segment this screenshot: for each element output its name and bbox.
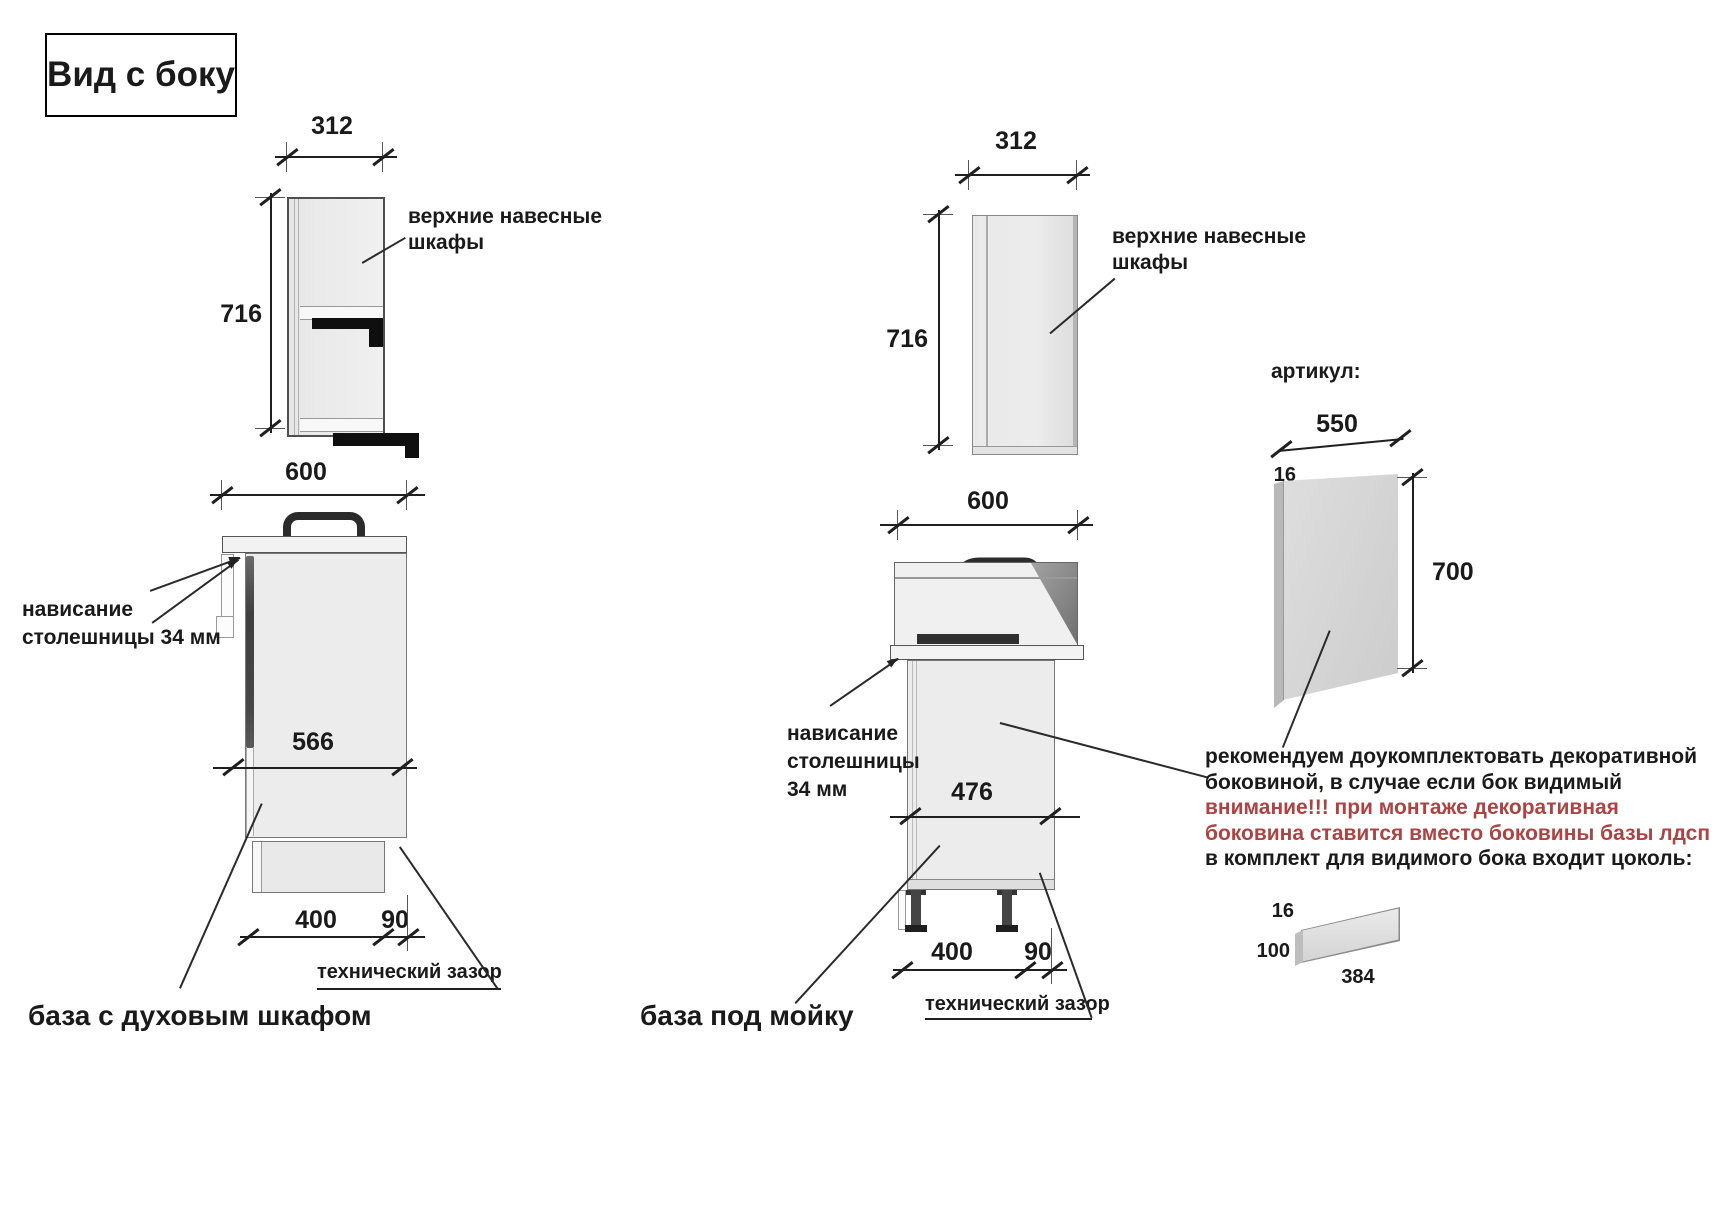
countertop [222,536,407,553]
dim-line [210,494,425,496]
plinth-length-value: 384 [1318,966,1398,989]
dim-height-value: 716 [864,325,928,354]
tech-gap-underline [925,1018,1092,1020]
dim-line [880,524,1093,526]
base-sink-caption: база под мойку [640,1000,854,1032]
dim-ext [407,895,408,951]
dim-line-slanted [1278,438,1404,452]
dim-width-value: 312 [292,112,372,141]
sink-bottom-strip [917,634,1019,644]
door-edge-line [298,199,299,435]
overhang-label: нависание столешницы 34 мм [22,596,221,652]
tech-gap-label: технический зазор [925,993,1110,1016]
countertop [890,645,1084,660]
dim-width-value: 312 [976,127,1056,156]
overhang-leader [830,658,899,706]
dim-ext [1051,928,1052,984]
dim-line [213,767,417,769]
sink-rim-line [895,577,1077,579]
note-line-2: боковиной, в случае если бок видимый [1205,770,1710,796]
wall-cabinet-label: верхние навесные шкафы [1112,224,1306,276]
door-edge-line [986,216,988,454]
overhang-label-line1: нависание [787,720,920,748]
dim-panel-height-value: 700 [1432,558,1502,587]
dim-plinth-recess-value: 400 [276,906,356,935]
tech-gap-underline [317,988,501,990]
note-line-4-warning: боковина ставится вместо боковины базы л… [1205,821,1710,847]
body-bottom-band [908,879,1054,889]
base-oven-caption: база с духовым шкафом [28,1000,372,1032]
plinth-height-value: 100 [1250,940,1290,963]
oven-handle [283,512,365,538]
sink-back-triangle [1031,563,1077,644]
dim-countertop-value: 600 [948,487,1028,516]
plinth-left-edge [253,842,262,892]
dim-line-vertical [1412,473,1414,673]
dim-panel-width-value: 550 [1297,410,1377,439]
dim-line [893,969,1067,971]
sink-box [894,562,1078,650]
dim-gap-value: 90 [1013,938,1063,967]
dim-line-vertical [270,193,272,433]
oven-door-dark-edge [246,556,254,748]
note-line-1: рекомендуем доукомплектовать декоративно… [1205,744,1710,770]
panel-notes: рекомендуем доукомплектовать декоративно… [1205,744,1710,872]
panel-face [1283,474,1398,700]
drawing-canvas: Вид с боку 312 716 верхние навесные шкаф… [0,0,1726,1222]
caption-leader [179,803,262,988]
page-title: Вид с боку [47,55,235,95]
tech-gap-label: технический зазор [317,961,502,984]
cabinet-bottom-band [973,446,1077,454]
note-line-5: в комплект для видимого бока входит цоко… [1205,846,1710,872]
shelf-bottom [300,418,383,432]
wall-cabinet-label-line2: шкафы [408,230,602,256]
dim-line [955,174,1090,176]
wall-cabinet-left-body [287,197,385,437]
door-edge-line [294,199,295,435]
article-label: артикул: [1271,359,1361,385]
dim-body-depth-value: 476 [932,778,1012,807]
overhang-label-line2: столешницы 34 мм [22,624,221,652]
dim-countertop-value: 600 [266,458,346,487]
bracket-mid-vertical [369,318,383,347]
title-box: Вид с боку [45,33,237,117]
plinth-board-face [1303,907,1399,963]
overhang-label-line1: нависание [22,596,221,624]
note-line-3-warning: внимание!!! при монтаже декоративная [1205,795,1710,821]
overhang-label: нависание столешницы 34 мм [787,720,920,804]
dim-plinth-recess-value: 400 [912,938,992,967]
wall-cabinet-label-line2: шкафы [1112,250,1306,276]
cabinet-right-edge [1073,216,1077,454]
plinth-thickness-value: 16 [1268,900,1294,923]
wall-cabinet-mid-body [972,215,1078,455]
panel-edge [1274,474,1284,708]
wall-cabinet-label-line1: верхние навесные [1112,224,1306,250]
oven-body [245,553,407,838]
overhang-label-line2: столешницы [787,748,920,776]
dim-line [240,936,425,938]
plinth-inset [252,841,385,893]
bracket-bottom-vertical [405,433,419,458]
overhang-label-line3: 34 мм [787,776,920,804]
wall-cabinet-label: верхние навесные шкафы [408,204,602,256]
dim-body-depth-value: 566 [273,728,353,757]
wall-cabinet-label-line1: верхние навесные [408,204,602,230]
back-panel-strip [898,890,906,930]
dim-line-vertical [938,210,940,450]
dim-height-value: 716 [198,300,262,329]
plinth-board-end-edge [1295,928,1303,968]
